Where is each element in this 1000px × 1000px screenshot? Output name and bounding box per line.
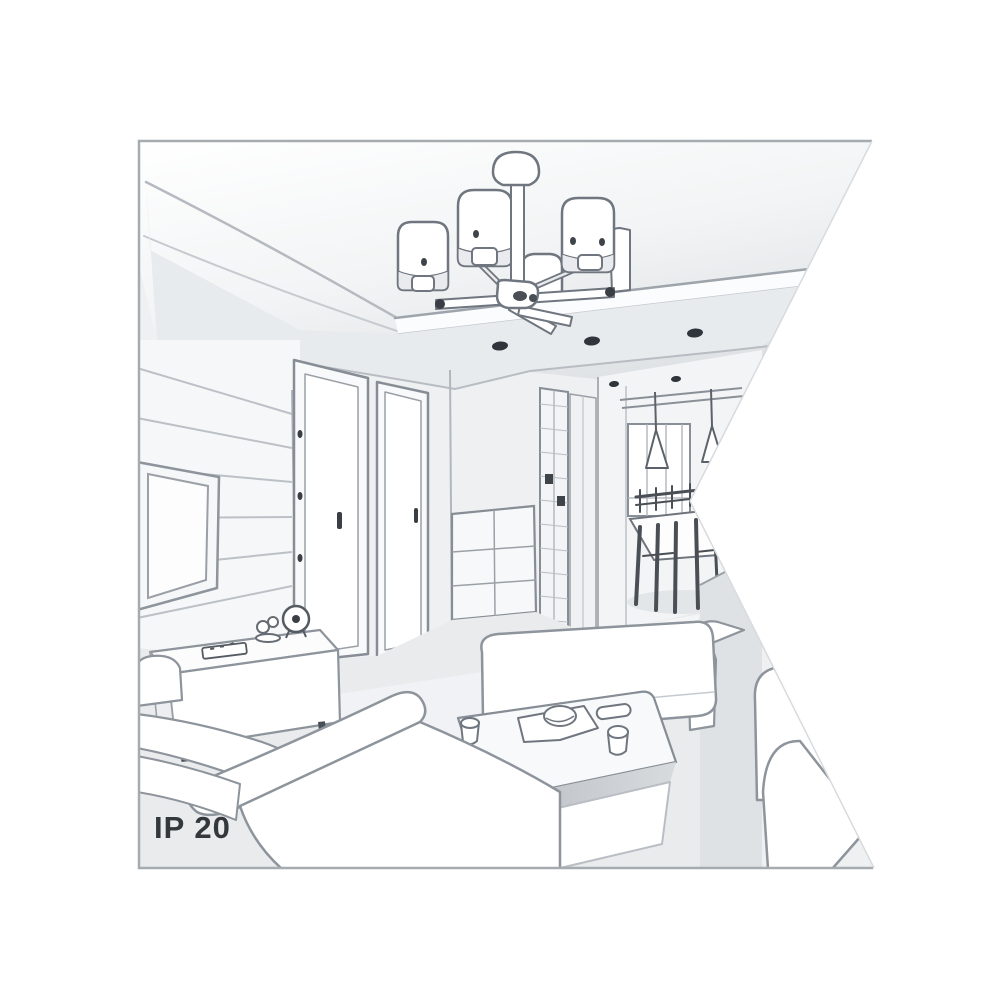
door-handle (414, 508, 418, 523)
wardrobe (540, 388, 596, 644)
ceiling-canopy (493, 152, 539, 185)
dresser (452, 506, 536, 620)
tv-wall (137, 340, 300, 650)
lamp-shade (398, 222, 448, 291)
cup (608, 726, 628, 755)
chandelier-stem (511, 178, 524, 288)
tv-frame (137, 462, 219, 610)
room-illustration: IP 20 (0, 0, 1000, 1000)
door-right (377, 382, 428, 658)
bowl (544, 706, 576, 726)
sofa-armrest (137, 656, 182, 706)
lamp-shade (562, 198, 614, 272)
door-handle (337, 512, 342, 529)
ip-rating-label: IP 20 (154, 810, 231, 845)
lamp-shade (458, 190, 512, 266)
product-illustration: IP 20 (0, 0, 1000, 1000)
right-sofa (688, 560, 868, 869)
